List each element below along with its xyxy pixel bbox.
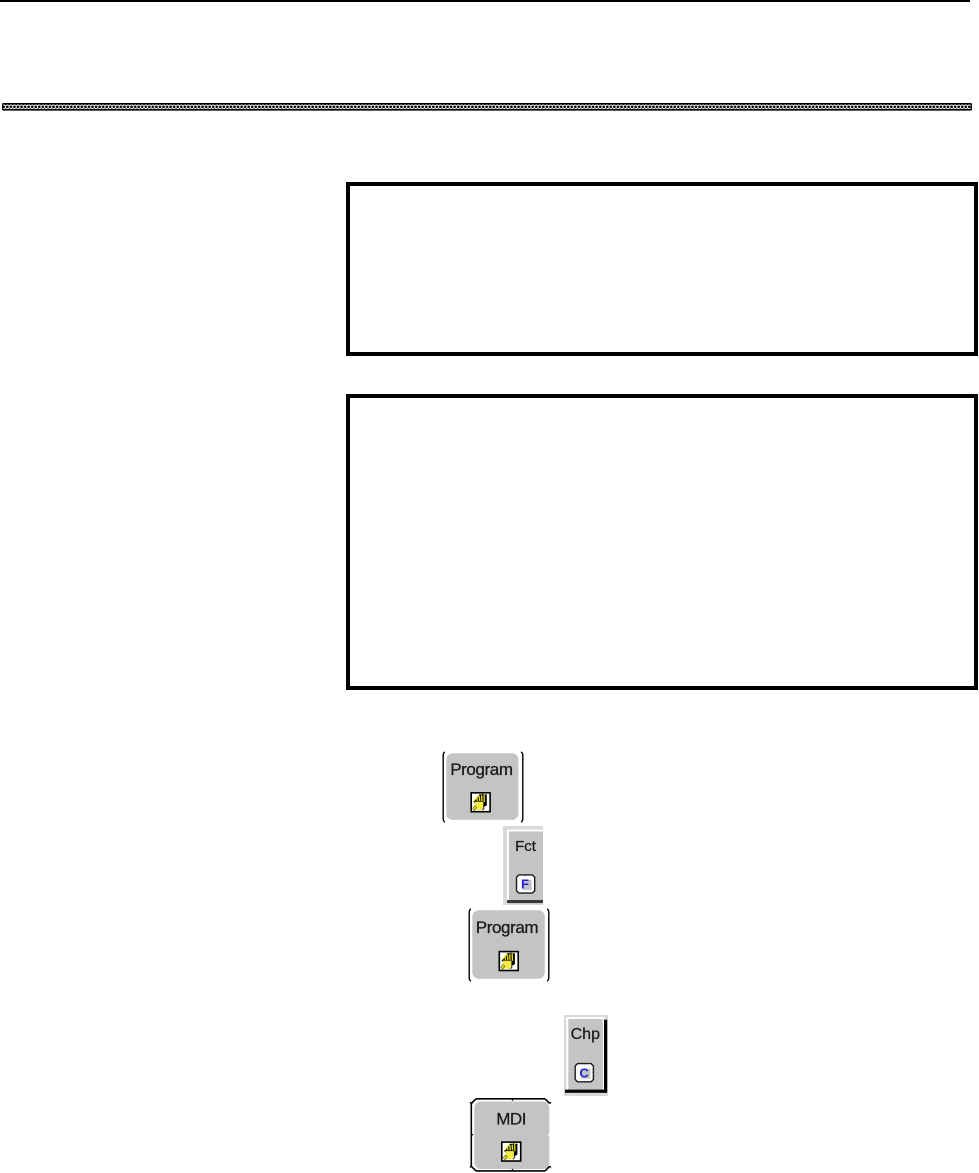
svg-text:MDI: MDI bbox=[496, 1109, 526, 1128]
svg-text:F: F bbox=[521, 877, 529, 892]
svg-text:Chp: Chp bbox=[571, 1026, 600, 1043]
svg-text:Program: Program bbox=[476, 918, 539, 937]
svg-text:Program: Program bbox=[450, 760, 513, 779]
svg-text:Fct: Fct bbox=[515, 838, 537, 855]
svg-text:C: C bbox=[579, 1065, 589, 1080]
